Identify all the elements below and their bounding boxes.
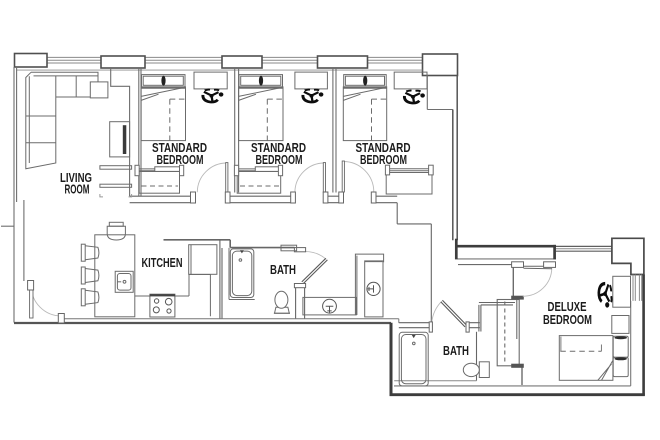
svg-text:BEDROOM: BEDROOM	[543, 312, 592, 327]
svg-text:BATH: BATH	[270, 262, 296, 277]
svg-text:BEDROOM: BEDROOM	[256, 152, 303, 167]
svg-text:ROOM: ROOM	[65, 182, 90, 197]
svg-text:BEDROOM: BEDROOM	[360, 152, 407, 167]
svg-text:KITCHEN: KITCHEN	[142, 255, 183, 270]
svg-text:BATH: BATH	[443, 343, 469, 358]
svg-text:BEDROOM: BEDROOM	[157, 152, 204, 167]
